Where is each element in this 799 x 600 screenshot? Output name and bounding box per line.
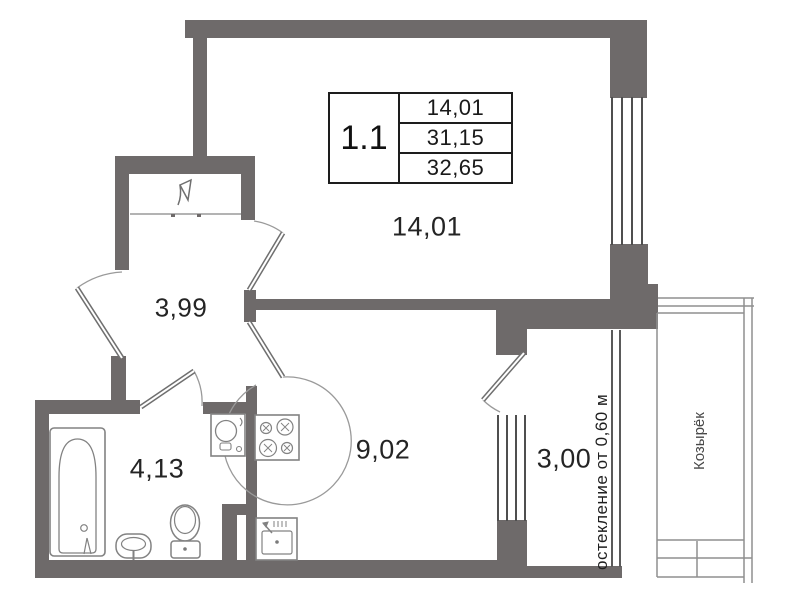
plan-linework [0, 0, 799, 600]
floor-plan: 1.1 14,01 31,15 32,65 14,01 3,99 4,13 9,… [0, 0, 799, 600]
canopy-annotation: Козырёк [691, 340, 708, 470]
washing-machine [211, 414, 245, 456]
living-room-window [612, 97, 642, 245]
toilet [171, 505, 201, 558]
bathroom-area-label: 4,13 [130, 454, 185, 485]
living-room-area-label: 14,01 [392, 212, 462, 243]
entry-threshold [130, 214, 241, 217]
title-block: 1.1 14,01 31,15 32,65 [328, 92, 513, 184]
kitchen-area-label: 9,02 [356, 435, 411, 466]
balcony-area-label: 3,00 [537, 444, 592, 475]
hallway-area-label: 3,99 [155, 293, 208, 324]
title-block-row-2: 31,15 [400, 124, 511, 154]
entry-door-symbol-icon [178, 180, 191, 205]
balcony-window [498, 415, 525, 521]
balcony-glazing-line [612, 330, 620, 567]
glazing-annotation: остекление от 0,60 м [592, 338, 612, 570]
bathtub [50, 428, 105, 556]
stove [255, 415, 299, 460]
bathroom-sink [116, 534, 151, 560]
kitchen-sink [256, 518, 297, 560]
unit-number: 1.1 [330, 94, 400, 182]
title-block-row-3: 32,65 [400, 154, 511, 182]
title-block-row-1: 14,01 [400, 94, 511, 124]
door-leaves [77, 233, 524, 407]
